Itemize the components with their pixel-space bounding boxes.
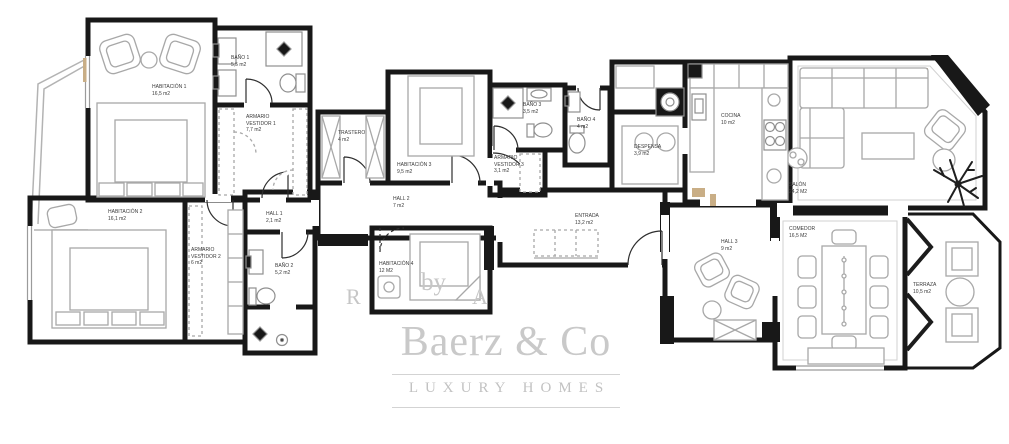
- watermark-fragment: R: [346, 284, 361, 310]
- side-table-icon: [141, 52, 157, 68]
- terrace-chair-icon: [946, 242, 978, 276]
- closet-icon: [534, 230, 598, 258]
- shower-icon: [266, 32, 302, 66]
- floor-plan: R by A HABITACIÓN 116,5 m2 BAÑO 15,5 m2 …: [0, 0, 1009, 444]
- room-label-habitacion-2: HABITACIÓN 216,1 m2: [108, 209, 142, 222]
- shower-icon: [493, 88, 523, 118]
- vent-icon: [656, 88, 684, 116]
- room-label-armario-vestidor-2: ARMARIO VESTIDOR 26 m2: [191, 247, 221, 267]
- dining-table-icon: [822, 246, 866, 334]
- armchair-icon: [692, 251, 732, 290]
- closet-icon: [189, 206, 243, 336]
- room-label-hall-2: HALL 27 m2: [393, 196, 410, 209]
- room-label-cocina: COCINA10 m2: [721, 113, 740, 126]
- room-label-habitacion-3: HABITACIÓN 39,5 m2: [397, 162, 431, 175]
- room-label-armario-vestidor-3: ARMARIO VESTIDOR 33,1 m2: [494, 155, 524, 175]
- wardrobe-icon: [322, 116, 340, 178]
- shower-icon: [253, 327, 267, 341]
- bed-icon: [408, 76, 474, 156]
- side-table-icon: [787, 148, 807, 168]
- bench-icon: [714, 320, 756, 340]
- logo-divider-bottom: [392, 407, 620, 408]
- stove-icon: [764, 120, 786, 150]
- bed-icon: [52, 230, 166, 328]
- sink-icon: [246, 250, 263, 274]
- balcony-outline: [31, 58, 88, 230]
- black-cabinet-icon: [688, 64, 702, 78]
- room-label-hall-1: HALL 12,1 m2: [266, 211, 283, 224]
- side-table-icon: [703, 301, 721, 319]
- watermark-fragment: by: [421, 269, 446, 297]
- room-label-armario-vestidor-1: ARMARIO VESTIDOR 17,7 m2: [246, 114, 276, 134]
- room-label-bano-3: BAÑO 33,5 m2: [523, 102, 541, 115]
- brand-logo: Baerz & Co LUXURY HOMES: [390, 320, 622, 408]
- room-label-habitacion-4: HABITACIÓN 412 M2: [379, 261, 413, 274]
- chair-icon: [46, 203, 78, 228]
- sink-icon: [527, 88, 551, 101]
- room-label-bano-1: BAÑO 15,5 m2: [231, 55, 249, 68]
- room-label-hall-3: HALL 39 m2: [721, 239, 738, 252]
- toilet-icon: [280, 74, 305, 92]
- toilet-icon: [569, 126, 585, 153]
- drain-icon: [277, 335, 288, 346]
- logo-divider-top: [392, 374, 620, 375]
- room-label-salon: SALÓN24,2 M2: [789, 182, 807, 195]
- room-label-bano-4: BAÑO 44 m2: [577, 117, 595, 130]
- watermark-fragment: A: [472, 284, 488, 310]
- brand-name: Baerz & Co: [390, 320, 622, 364]
- armchair-icon: [723, 273, 762, 311]
- wardrobe-icon: [366, 116, 384, 178]
- coffee-table-icon: [862, 133, 914, 159]
- room-label-entrada: ENTRADA13,2 m2: [575, 213, 599, 226]
- toilet-icon: [249, 288, 275, 305]
- terrace-chair-icon: [946, 308, 978, 342]
- toilet-icon: [527, 123, 552, 137]
- room-label-habitacion-1: HABITACIÓN 116,5 m2: [152, 84, 186, 97]
- room-label-comedor: COMEDOR16,5 M2: [789, 226, 815, 239]
- sideboard-icon: [808, 348, 884, 364]
- room-label-despensa: DESPENSA3,9 m2: [634, 144, 661, 157]
- room-label-bano-2: BAÑO 25,2 m2: [275, 263, 293, 276]
- bed-icon: [97, 103, 205, 197]
- room-label-terraza: TERRAZA10,5 m2: [913, 282, 936, 295]
- armchair-icon: [922, 107, 968, 153]
- brand-tagline: LUXURY HOMES: [390, 380, 622, 397]
- sink-icon: [692, 94, 706, 120]
- desk-icon: [378, 276, 400, 298]
- room-label-trastero: TRASTERO4 m2: [338, 130, 365, 143]
- terrace-table-icon: [946, 278, 974, 306]
- counter-icon: [616, 66, 654, 88]
- armchair-icon: [158, 32, 203, 75]
- armchair-icon: [98, 32, 143, 75]
